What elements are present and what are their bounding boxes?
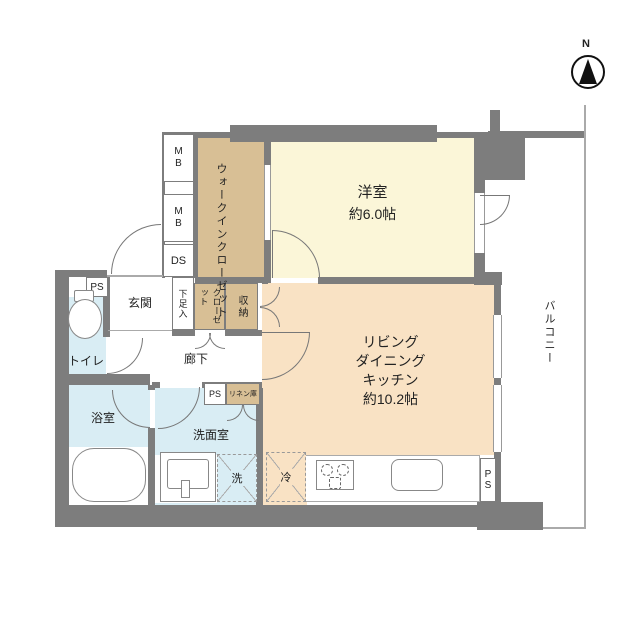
wall-left-outer [55,270,69,527]
wall [490,110,500,132]
ldk-name-line3: キッチン [363,372,419,388]
meter-box: MB [163,194,194,242]
wall [55,270,107,277]
entry-door-arc [111,224,161,274]
vanity-faucet [181,480,190,498]
north-arrow-icon [579,59,597,84]
ldk-window [493,315,502,378]
pipe-space-label: PS [483,469,494,491]
kitchen-sink [391,459,443,491]
ldk-size: 約10.2帖 [363,391,418,407]
western-room-size: 約6.0帖 [349,206,396,222]
linen-box: リネン庫 [226,383,260,405]
north-label: N [582,38,590,50]
toilet-label: トイレ [62,352,110,369]
balcony-label: バルコニー [541,300,557,365]
pipe-space-box: PS [204,383,226,405]
western-room-name: 洋室 [357,184,387,201]
closet-door-arc [209,333,225,349]
balcony-railing [543,527,586,529]
toilet-door-arc [107,338,143,374]
western-room-door-leaf [272,230,273,278]
walk-in-closet-label: ウォークインクローゼット [213,163,228,251]
wall [494,378,501,385]
wall [55,374,150,385]
balcony-door-leaf [480,195,510,196]
wall-bottom-outer [55,505,480,527]
stove-burner [329,477,341,489]
washer-space: 洗 [217,454,257,502]
shoe-cabinet-label: 下足入 [177,289,190,319]
linen-label: リネン庫 [229,389,257,399]
meter-box-label: MB [173,146,184,170]
wall [264,125,271,165]
washroom-label: 洗面室 [179,426,243,443]
bathroom-label: 浴室 [77,409,129,426]
wall [474,137,485,193]
wall [230,125,437,142]
balcony-door-arc [480,195,510,225]
stove-burner [321,464,333,476]
wall [264,240,271,283]
wall [494,284,501,315]
bathtub [72,448,146,502]
wall [172,330,195,336]
ldk-name-line2: ダイニング [356,353,426,369]
storage-label: 収納 [234,295,249,319]
entry-door-leaf [107,275,163,277]
shoe-cabinet-box: 下足入 [172,277,194,330]
duct-space-label: DS [171,255,186,267]
balcony-railing [584,105,586,529]
meter-box-label: MB [173,206,184,230]
pipe-space-label: PS [209,389,221,399]
wic-sliding-door [264,165,271,240]
walk-in-closet-floor [196,138,266,278]
stove-burner [337,464,349,476]
toilet-fixture [68,299,102,339]
wall-bottom-corner [477,502,543,530]
ldk-name-line1: リビング [363,334,419,350]
pipe-space-box: PS [480,458,496,502]
stove [316,460,354,490]
floor-plan: MB MB DS PS 下足入 クローゼット 収納 PS リネン庫 PS 洗 冷 [0,0,640,640]
ldk-door-leaf [262,332,310,333]
fridge-space: 冷 [266,452,306,502]
ldk-label: リビング ダイニング キッチン 約10.2帖 [318,333,463,409]
corridor-label: 廊下 [170,350,222,367]
entrance-label: 玄関 [112,294,168,311]
western-room-label: 洋室 約6.0帖 [300,182,445,225]
wall [148,428,155,505]
wall [318,277,500,284]
washer-label: 洗 [231,470,244,486]
duct-space-box: DS [163,244,194,277]
fridge-label: 冷 [280,469,293,485]
storage-box: 収納 [225,283,258,330]
meter-box: MB [163,134,194,182]
entrance-step-line [108,330,172,331]
ldk-window [493,385,502,452]
wall [225,330,262,336]
